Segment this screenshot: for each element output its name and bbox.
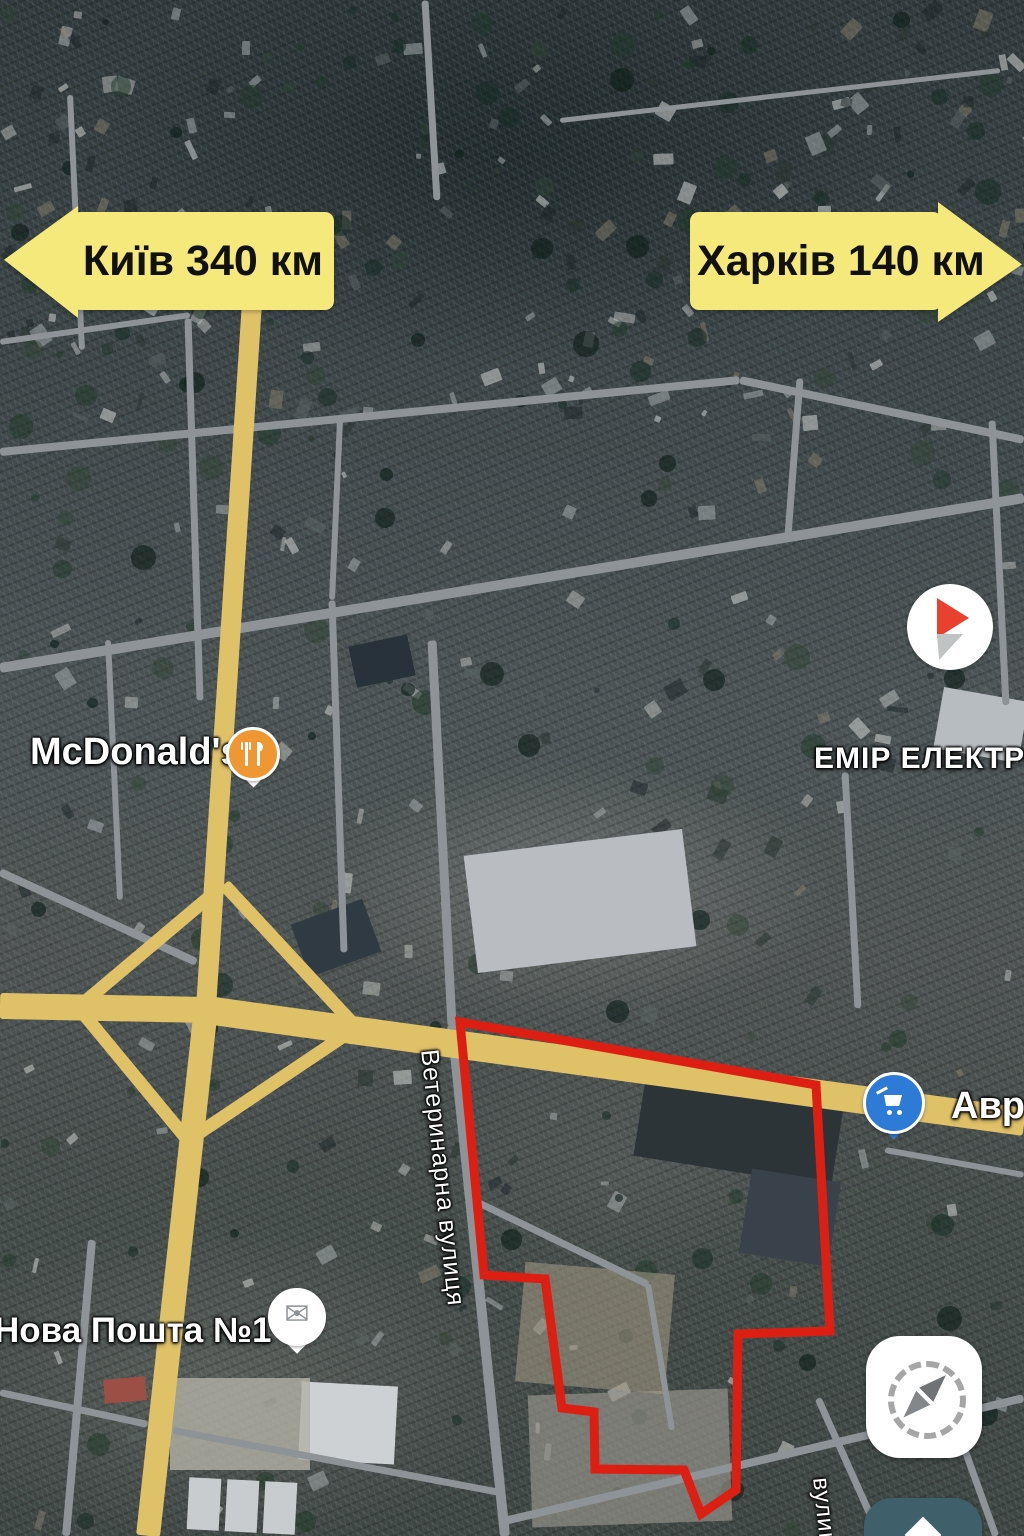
kharkiv-sign-label: Харків 140 км [686, 212, 996, 310]
satellite-map[interactable]: McDonald's ЕМІР ЕЛЕКТРО Нова Пошта №1 Ав… [0, 0, 1024, 1536]
nova-poshta-label[interactable]: Нова Пошта №1 [0, 1311, 271, 1351]
compass-button[interactable] [866, 1336, 982, 1458]
kharkiv-direction-sign: Харків 140 км [686, 196, 1024, 324]
nova-poshta-marker[interactable]: ✉ [268, 1288, 326, 1358]
cart-icon [863, 1072, 925, 1134]
mcdonalds-marker[interactable] [226, 727, 280, 793]
avrora-label[interactable]: Аврора [951, 1085, 1024, 1128]
avrora-marker[interactable] [863, 1072, 925, 1144]
mcdonalds-label[interactable]: McDonald's [30, 731, 242, 774]
video-play-button[interactable] [907, 584, 993, 670]
envelope-icon: ✉ [268, 1288, 326, 1346]
navigation-arrow-icon [905, 1517, 942, 1536]
play-icon-shadow [937, 634, 963, 660]
emir-elektro-label[interactable]: ЕМІР ЕЛЕКТРО [814, 742, 1024, 776]
restaurant-icon [226, 727, 280, 781]
kyiv-sign-label: Київ 340 км [72, 212, 334, 310]
arrow-left-icon [4, 206, 78, 318]
navigation-button[interactable] [864, 1498, 982, 1536]
kyiv-direction-sign: Київ 340 км [4, 198, 336, 326]
play-icon [937, 598, 969, 638]
